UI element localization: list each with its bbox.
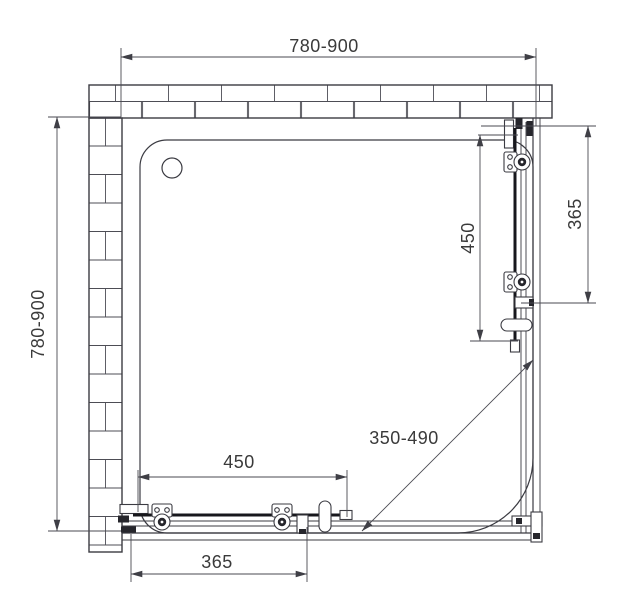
- shower-tray: [140, 140, 533, 533]
- drawing-canvas: 780-900 780-900 365 450 350-490 450: [0, 0, 643, 600]
- dimension-corner-opening: 350-490: [362, 360, 533, 531]
- right-door-wall-profile-clip: [516, 118, 523, 129]
- frame-inner-edge: [122, 118, 533, 533]
- right-door-wall-profile-clip: [527, 121, 533, 136]
- corner-post: [512, 512, 542, 542]
- track-rails: [122, 122, 533, 533]
- dim-left-depth-label: 780-900: [28, 289, 48, 359]
- walls: [89, 85, 552, 552]
- bottom-door-wall-profile-clip: [118, 516, 129, 523]
- top-wall: [89, 85, 552, 118]
- dim-bottom-door-label: 450: [223, 452, 255, 472]
- dim-right-door-label: 450: [458, 222, 478, 254]
- dim-corner-opening-label: 350-490: [369, 428, 439, 448]
- left-wall: [89, 118, 122, 552]
- tray-outline: [140, 140, 533, 533]
- corner-post-screw: [533, 533, 540, 539]
- dim-right-fixed-panel-label: 365: [565, 198, 585, 230]
- right-door-wall-profile: [505, 120, 514, 148]
- bottom-door-bracket-screw: [299, 529, 306, 534]
- right-door-bracket-screw: [529, 299, 534, 306]
- bottom-door-edge-cap: [340, 511, 352, 520]
- bottom-door-wall-profile: [120, 505, 148, 514]
- door-roller-icon: [272, 504, 292, 530]
- dimension-bottom-fixed-panel: 365: [131, 527, 307, 582]
- drain-hole: [162, 158, 182, 178]
- door-roller-icon: [504, 152, 530, 172]
- door-roller-icon: [152, 504, 172, 530]
- bottom-door-wall-profile-clip: [121, 527, 136, 533]
- dim-top-width-label: 780-900: [289, 36, 359, 56]
- bottom-door-handle: [319, 501, 331, 532]
- right-door-edge-cap: [511, 340, 520, 352]
- dim-bottom-fixed-panel-label: 365: [201, 552, 233, 572]
- right-door-handle: [501, 319, 532, 331]
- dimension-right-fixed-panel: 365: [481, 126, 596, 303]
- shower-enclosure-plan-drawing: 780-900 780-900 365 450 350-490 450: [0, 0, 643, 600]
- corner-post-screw: [516, 518, 522, 524]
- door-roller-icon: [504, 272, 530, 292]
